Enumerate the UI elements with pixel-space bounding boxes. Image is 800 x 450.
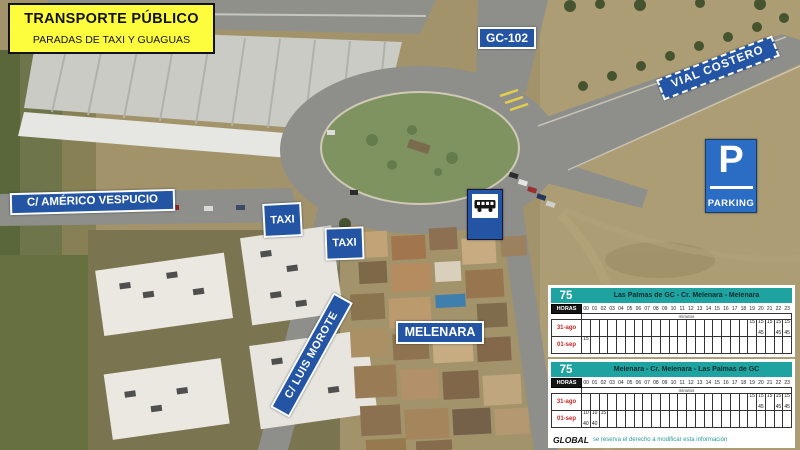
hour-cell: 15	[748, 394, 757, 411]
hour-cell	[678, 320, 687, 337]
hour-cell: 1545	[783, 394, 792, 411]
hour-cell	[582, 320, 591, 337]
hour-cell	[643, 411, 652, 428]
hour-tick: 20	[757, 379, 766, 388]
hour-cell	[739, 337, 748, 354]
hour-cell	[617, 394, 626, 411]
hour-cell	[687, 411, 696, 428]
hour-cell	[625, 411, 634, 428]
departure-minute: 45	[757, 405, 765, 410]
hour-cell	[634, 337, 643, 354]
hour-tick: 16	[722, 305, 731, 314]
hour-cell	[739, 320, 748, 337]
title-line1: TRANSPORTE PÚBLICO	[24, 11, 199, 27]
transport-map-infographic: TRANSPORTE PÚBLICO PARADAS DE TAXI Y GUA…	[0, 0, 800, 450]
hour-tick: 10	[669, 305, 678, 314]
hour-tick: 05	[625, 379, 634, 388]
route-number: 75	[551, 364, 581, 376]
hour-tick: 03	[608, 305, 617, 314]
hour-tick: 13	[695, 379, 704, 388]
hour-cell: 15	[765, 394, 774, 411]
hour-tick: 13	[695, 305, 704, 314]
hour-cell	[722, 394, 731, 411]
hour-tick: 14	[704, 305, 713, 314]
departure-minute: 45	[783, 331, 791, 336]
hour-tick: 23	[783, 379, 792, 388]
hour-cell	[652, 394, 661, 411]
title-line2: PARADAS DE TAXI Y GUAGUAS	[33, 34, 190, 46]
day-label: 01-sep	[552, 411, 582, 428]
hour-cell	[652, 411, 661, 428]
departure-minute: 15	[775, 394, 783, 399]
departure-minute: 15	[757, 394, 765, 399]
hour-cell	[774, 337, 783, 354]
hour-cell	[695, 394, 704, 411]
hour-cell	[625, 337, 634, 354]
hour-cell: 1545	[757, 320, 766, 337]
hour-cell	[634, 320, 643, 337]
route-number: 75	[551, 290, 581, 302]
hours-row: HORAS00010203040506070809101112131415161…	[552, 379, 792, 388]
hour-cell	[652, 337, 661, 354]
hour-tick: 01	[590, 379, 599, 388]
timetable-grid: HORAS00010203040506070809101112131415161…	[551, 378, 792, 428]
hour-tick: 09	[660, 305, 669, 314]
hour-cell	[660, 337, 669, 354]
hour-tick: 07	[643, 379, 652, 388]
day-label: 31-ago	[552, 394, 582, 411]
hour-cell	[608, 320, 617, 337]
hour-cell	[695, 320, 704, 337]
hour-cell	[669, 411, 678, 428]
hour-cell: 1545	[783, 320, 792, 337]
route-name: Melenara - Cr. Melenara - Las Palmas de …	[581, 366, 792, 373]
hour-tick: 11	[678, 305, 687, 314]
hour-cell	[713, 411, 722, 428]
hour-tick: 02	[599, 305, 608, 314]
hour-tick: 12	[687, 305, 696, 314]
hour-cell	[625, 394, 634, 411]
hour-cell	[722, 411, 731, 428]
hour-tick: 22	[774, 379, 783, 388]
hour-cell	[608, 394, 617, 411]
hour-cell	[660, 411, 669, 428]
route-name: Las Palmas de GC - Cr. Melenara - Melena…	[581, 292, 792, 299]
hour-tick: 23	[783, 305, 792, 314]
hour-tick: 02	[599, 379, 608, 388]
global-brand: GLOBAL	[553, 435, 589, 445]
hour-tick: 19	[748, 305, 757, 314]
departure-minute: 15	[600, 411, 608, 416]
day-row: 31-ago1515451515451545	[552, 320, 792, 337]
departure-minute: 45	[775, 331, 783, 336]
hour-cell	[599, 320, 608, 337]
hour-tick: 19	[748, 379, 757, 388]
hours-label: HORAS	[552, 379, 582, 388]
hour-cell	[678, 411, 687, 428]
hour-cell	[730, 411, 739, 428]
departure-minute: 45	[775, 405, 783, 410]
hour-cell	[669, 394, 678, 411]
hour-cell	[695, 411, 704, 428]
day-label: 31-ago	[552, 320, 582, 337]
departure-minute: 15	[757, 320, 765, 325]
departure-minute: 40	[582, 422, 590, 427]
hour-cell	[669, 337, 678, 354]
hour-cell	[617, 320, 626, 337]
hour-cell: 1040	[582, 411, 591, 428]
road-sign-gc102: GC-102	[478, 27, 536, 49]
hour-tick: 04	[617, 305, 626, 314]
hour-cell	[730, 337, 739, 354]
hour-cell	[748, 337, 757, 354]
hour-cell	[599, 337, 608, 354]
hour-cell	[687, 320, 696, 337]
hour-cell	[783, 337, 792, 354]
hour-cell	[704, 320, 713, 337]
hour-cell	[652, 320, 661, 337]
hour-tick: 08	[652, 305, 661, 314]
hour-tick: 14	[704, 379, 713, 388]
hour-tick: 17	[730, 379, 739, 388]
departure-minute: 15	[582, 337, 590, 342]
hour-cell: 15	[582, 337, 591, 354]
day-row: 01-sep15	[552, 337, 792, 354]
hour-tick: 15	[713, 379, 722, 388]
hour-cell	[608, 337, 617, 354]
hour-cell	[617, 411, 626, 428]
hours-row: HORAS00010203040506070809101112131415161…	[552, 305, 792, 314]
day-row: 31-ago1515451515451545	[552, 394, 792, 411]
hour-cell	[757, 337, 766, 354]
hour-tick: 09	[660, 379, 669, 388]
hour-cell: 1545	[774, 320, 783, 337]
hour-tick: 01	[590, 305, 599, 314]
place-sign-melenara: MELENARA	[396, 321, 484, 344]
hour-cell	[660, 320, 669, 337]
hour-cell	[765, 337, 774, 354]
hour-cell	[660, 394, 669, 411]
day-label: 01-sep	[552, 337, 582, 354]
hour-cell	[625, 320, 634, 337]
timetable-grid: HORAS00010203040506070809101112131415161…	[551, 304, 792, 354]
hour-cell	[765, 411, 774, 428]
hour-cell	[704, 411, 713, 428]
hour-cell	[582, 394, 591, 411]
hour-cell	[590, 320, 599, 337]
hour-cell	[599, 394, 608, 411]
hour-tick: 20	[757, 305, 766, 314]
hour-cell	[713, 394, 722, 411]
parking-p-symbol: P	[718, 143, 743, 177]
hour-tick: 05	[625, 305, 634, 314]
hour-tick: 00	[582, 379, 591, 388]
hour-cell	[757, 411, 766, 428]
taxi-stop-sign-south: TAXI	[324, 226, 364, 260]
hour-cell	[590, 337, 599, 354]
hour-tick: 04	[617, 379, 626, 388]
parking-label: PARKING	[708, 199, 755, 209]
hour-cell	[783, 411, 792, 428]
hour-tick: 06	[634, 379, 643, 388]
hour-cell: 15	[748, 320, 757, 337]
hour-cell	[695, 337, 704, 354]
schedule-footer: GLOBAL se reserva el derecho a modificar…	[548, 431, 795, 448]
departure-minute: 15	[748, 394, 756, 399]
hour-cell	[687, 394, 696, 411]
hour-tick: 18	[739, 379, 748, 388]
hour-cell	[730, 394, 739, 411]
hour-cell	[730, 320, 739, 337]
parking-divider	[710, 186, 753, 189]
departure-minute: 15	[783, 320, 791, 325]
departure-minute: 15	[748, 320, 756, 325]
hour-tick: 12	[687, 379, 696, 388]
hour-tick: 16	[722, 379, 731, 388]
departure-minute: 15	[783, 394, 791, 399]
hour-cell	[617, 337, 626, 354]
hour-cell	[722, 337, 731, 354]
hour-cell	[774, 411, 783, 428]
hour-cell	[713, 320, 722, 337]
disclaimer-text: se reserva el derecho a modificar esta i…	[593, 437, 727, 443]
hour-cell	[739, 394, 748, 411]
roundabout-island	[321, 92, 519, 204]
departure-minute: 45	[757, 331, 765, 336]
departure-minute: 10	[582, 411, 590, 416]
hour-tick: 11	[678, 379, 687, 388]
hour-cell	[643, 320, 652, 337]
hours-label: HORAS	[552, 305, 582, 314]
hour-tick: 17	[730, 305, 739, 314]
hour-tick: 22	[774, 305, 783, 314]
hour-cell	[713, 337, 722, 354]
hour-cell	[722, 320, 731, 337]
departure-minute: 15	[766, 394, 774, 399]
hour-cell	[704, 394, 713, 411]
hour-cell	[643, 337, 652, 354]
timetable-return: 75Melenara - Cr. Melenara - Las Palmas d…	[548, 359, 795, 431]
hour-tick: 21	[765, 305, 774, 314]
hour-cell: 1545	[774, 394, 783, 411]
route-header: 75Melenara - Cr. Melenara - Las Palmas d…	[551, 362, 792, 377]
hour-cell	[739, 411, 748, 428]
day-row: 01-sep1040104015	[552, 411, 792, 428]
hour-tick: 21	[765, 379, 774, 388]
hour-tick: 07	[643, 305, 652, 314]
title-box: TRANSPORTE PÚBLICO PARADAS DE TAXI Y GUA…	[8, 3, 215, 54]
parking-sign: P PARKING	[705, 139, 757, 213]
bus-stop-sign	[467, 189, 503, 240]
hour-tick: 10	[669, 379, 678, 388]
hour-cell	[687, 337, 696, 354]
hour-cell	[704, 337, 713, 354]
departure-minute: 10	[591, 411, 599, 416]
departure-minute: 40	[591, 422, 599, 427]
hour-cell: 15	[599, 411, 608, 428]
hour-tick: 00	[582, 305, 591, 314]
hour-cell	[590, 394, 599, 411]
hour-cell	[748, 411, 757, 428]
hour-cell	[678, 394, 687, 411]
hour-cell: 1545	[757, 394, 766, 411]
hour-tick: 06	[634, 305, 643, 314]
hour-cell: 1040	[590, 411, 599, 428]
hour-cell: 15	[765, 320, 774, 337]
timetable-outbound: 75Las Palmas de GC - Cr. Melenara - Mele…	[548, 285, 795, 357]
hour-cell	[678, 337, 687, 354]
hour-tick: 15	[713, 305, 722, 314]
hour-tick: 08	[652, 379, 661, 388]
bus-icon	[472, 194, 498, 218]
departure-minute: 45	[783, 405, 791, 410]
road-sign-americo-vespucio: C/ AMÉRICO VESPUCIO	[10, 189, 176, 215]
taxi-stop-sign-north: TAXI	[262, 202, 303, 238]
hour-cell	[669, 320, 678, 337]
hour-cell	[643, 394, 652, 411]
hour-tick: 03	[608, 379, 617, 388]
departure-minute: 15	[775, 320, 783, 325]
route-header: 75Las Palmas de GC - Cr. Melenara - Mele…	[551, 288, 792, 303]
departure-minute: 15	[766, 320, 774, 325]
hour-cell	[634, 394, 643, 411]
hour-cell	[634, 411, 643, 428]
hour-tick: 18	[739, 305, 748, 314]
hour-cell	[608, 411, 617, 428]
